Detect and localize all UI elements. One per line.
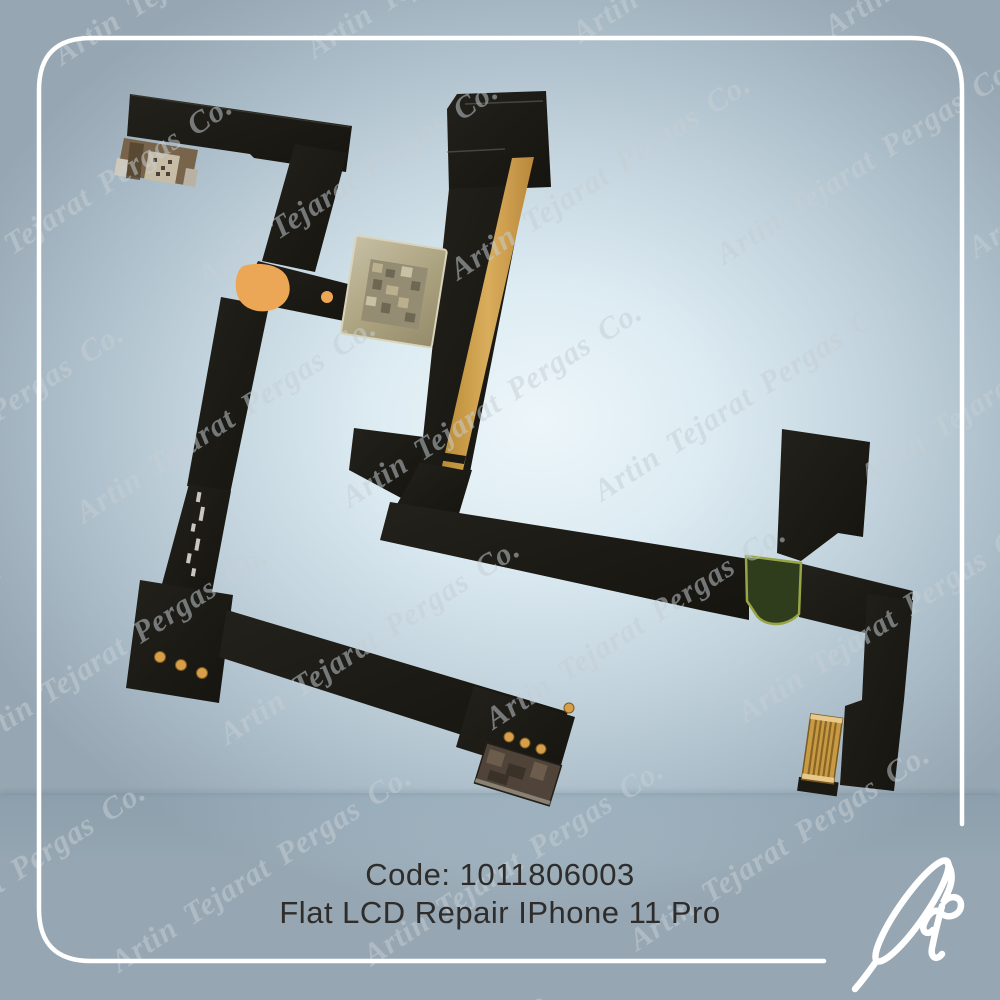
frame-overlay [0, 0, 1000, 1000]
product-code-text: Code: 1011806003 [0, 856, 1000, 894]
product-name-text: Flat LCD Repair IPhone 11 Pro [0, 894, 1000, 932]
rounded-border-frame [39, 38, 962, 961]
product-photo-canvas: Artin Tejarat Pergas Co.Artin Tejarat Pe… [0, 0, 1000, 1000]
caption: Code: 1011806003 Flat LCD Repair IPhone … [0, 856, 1000, 932]
